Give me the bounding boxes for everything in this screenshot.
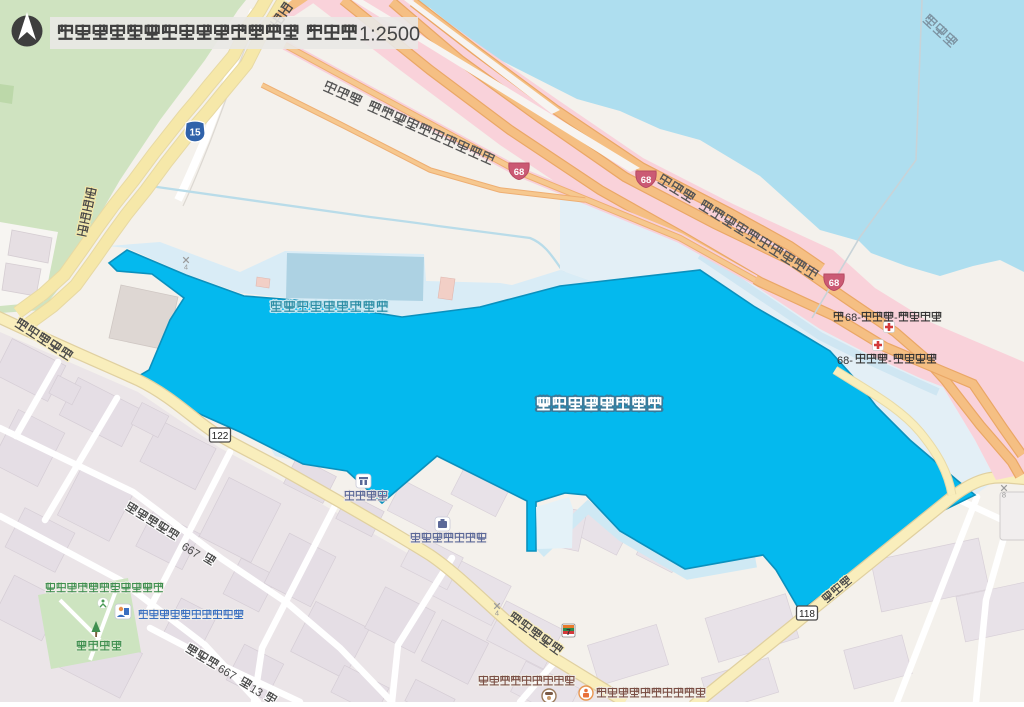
svg-text:-: - [888, 355, 892, 367]
svg-text:122: 122 [212, 431, 229, 442]
svg-text:7: 7 [566, 628, 571, 637]
svg-text:68: 68 [829, 278, 840, 289]
svg-text:4: 4 [184, 263, 188, 272]
svg-text:68-: 68- [845, 312, 861, 324]
svg-text:68-: 68- [837, 355, 853, 367]
svg-text:68: 68 [514, 167, 525, 178]
svg-text:-: - [894, 312, 898, 324]
svg-text:1:2500: 1:2500 [359, 24, 420, 46]
svg-text:118: 118 [799, 609, 815, 620]
svg-text:68: 68 [641, 175, 652, 186]
svg-text:8: 8 [1002, 491, 1006, 500]
svg-text:4: 4 [495, 609, 499, 618]
svg-text:15: 15 [189, 128, 201, 139]
